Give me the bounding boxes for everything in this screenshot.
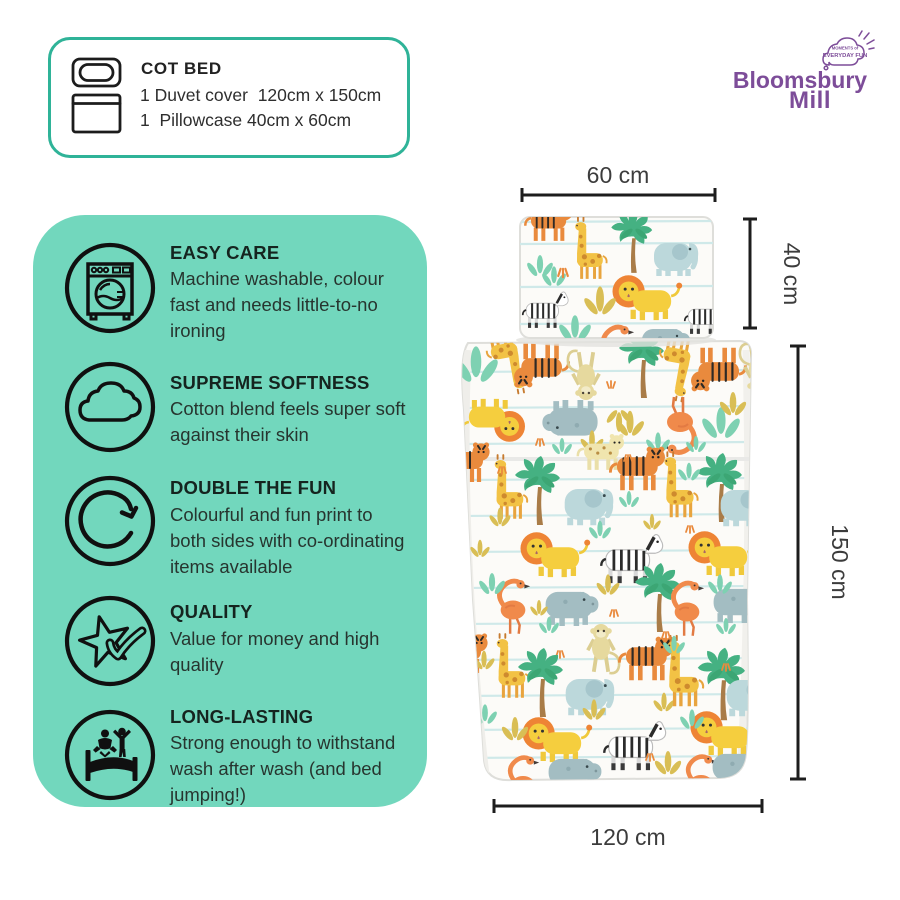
- svg-text:MOMENTS of: MOMENTS of: [832, 46, 859, 51]
- svg-text:150 cm: 150 cm: [827, 524, 853, 599]
- svg-text:120 cm: 120 cm: [590, 824, 665, 850]
- svg-text:40 cm: 40 cm: [779, 243, 805, 306]
- svg-text:EVERYDAY FUN: EVERYDAY FUN: [823, 53, 868, 59]
- svg-text:60 cm: 60 cm: [587, 162, 650, 188]
